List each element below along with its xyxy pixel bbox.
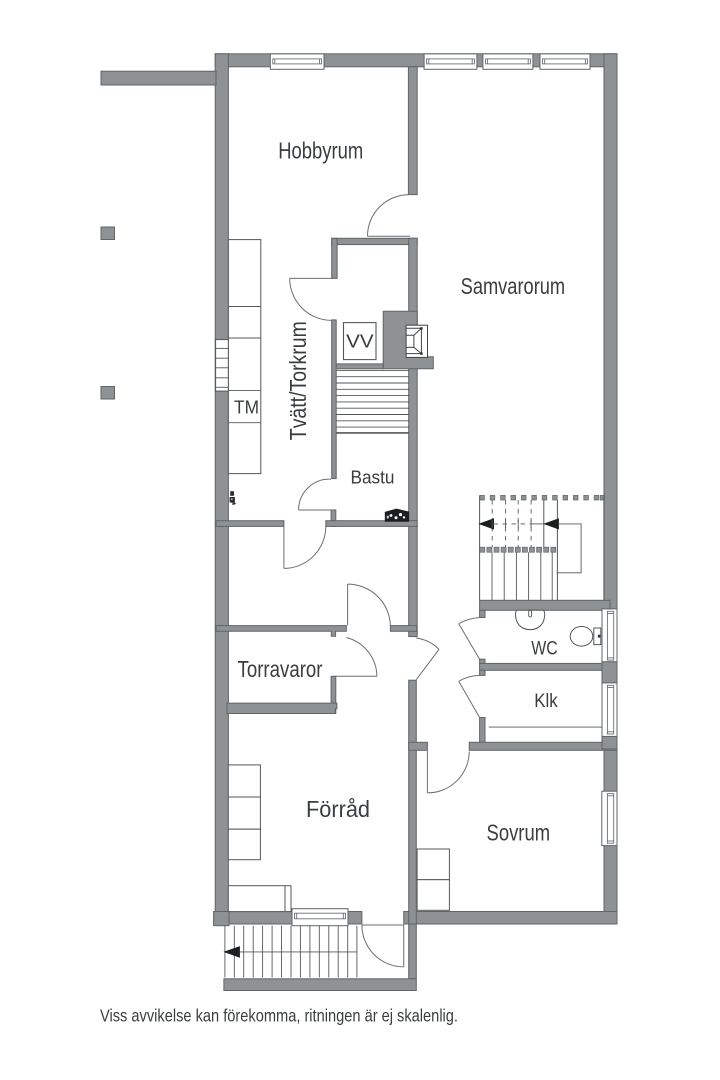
svg-text:Hobbyrum: Hobbyrum: [278, 137, 363, 163]
svg-text:Klk: Klk: [534, 691, 558, 712]
svg-text:VV: VV: [346, 331, 374, 352]
svg-text:TM: TM: [234, 396, 259, 417]
svg-text:Torravaror: Torravaror: [238, 656, 323, 682]
svg-text:Viss avvikelse kan förekomma,: Viss avvikelse kan förekomma, ritningen …: [100, 1005, 458, 1025]
svg-text:Sovrum: Sovrum: [487, 819, 551, 845]
svg-text:Tvätt/Torkrum: Tvätt/Torkrum: [285, 321, 311, 440]
svg-text:Samvarorum: Samvarorum: [461, 273, 566, 299]
svg-text:Bastu: Bastu: [351, 466, 395, 487]
svg-text:WC: WC: [531, 638, 558, 659]
svg-text:Förråd: Förråd: [306, 796, 370, 822]
